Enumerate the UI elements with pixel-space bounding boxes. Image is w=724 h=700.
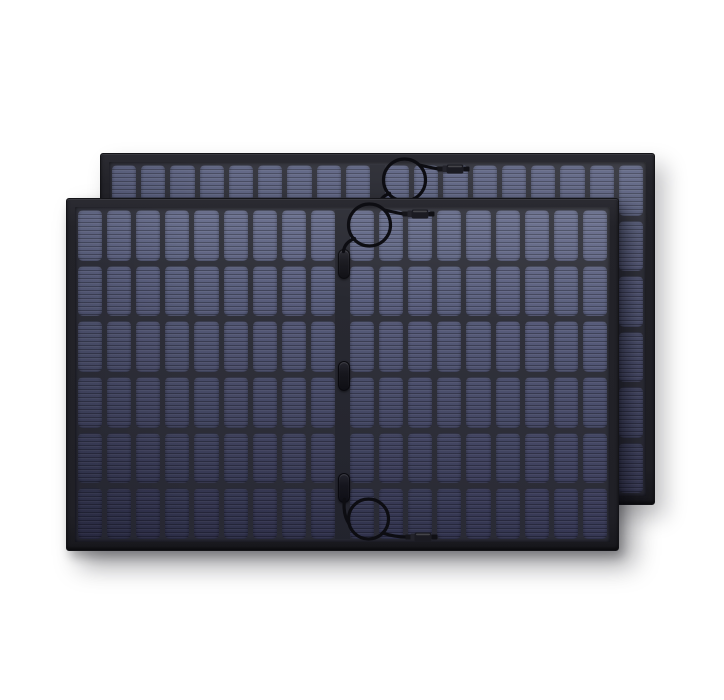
solar-cell: [282, 377, 306, 428]
solar-cell: [379, 321, 403, 372]
solar-cell: [408, 210, 432, 261]
solar-cell: [496, 321, 520, 372]
solar-cell: [554, 488, 578, 539]
solar-cell: [408, 488, 432, 539]
solar-cell: [224, 488, 248, 539]
solar-cell: [619, 165, 643, 216]
solar-cell: [194, 321, 218, 372]
solar-cell: [583, 321, 607, 372]
solar-cell: [78, 321, 102, 372]
solar-cell: [619, 387, 643, 438]
solar-cell: [136, 488, 160, 539]
solar-cell: [253, 266, 277, 317]
solar-cell: [350, 488, 374, 539]
solar-cell: [253, 433, 277, 484]
solar-cell: [311, 266, 335, 317]
solar-cell: [165, 266, 189, 317]
solar-cell: [194, 488, 218, 539]
solar-cell: [466, 488, 490, 539]
solar-cell: [554, 321, 578, 372]
solar-cell: [525, 266, 549, 317]
solar-cell: [194, 433, 218, 484]
solar-cell: [224, 377, 248, 428]
solar-cell: [437, 210, 461, 261]
solar-cell: [311, 321, 335, 372]
solar-cell: [619, 221, 643, 272]
solar-cell: [136, 321, 160, 372]
solar-cell: [525, 321, 549, 372]
solar-cell: [78, 433, 102, 484]
solar-cell: [282, 210, 306, 261]
solar-cell: [107, 321, 131, 372]
solar-cell: [437, 321, 461, 372]
solar-cell: [466, 210, 490, 261]
solar-cell: [165, 433, 189, 484]
solar-cell: [437, 377, 461, 428]
solar-cell: [224, 210, 248, 261]
junction-pill: [338, 249, 350, 279]
solar-cell: [78, 377, 102, 428]
solar-cell: [253, 210, 277, 261]
solar-cell: [107, 377, 131, 428]
solar-cell: [554, 377, 578, 428]
junction-pill: [338, 473, 350, 503]
solar-cell: [165, 377, 189, 428]
junction-pill: [338, 361, 350, 391]
solar-cell: [525, 433, 549, 484]
solar-cell: [78, 488, 102, 539]
solar-cell: [224, 433, 248, 484]
solar-cell: [466, 266, 490, 317]
solar-cell: [437, 433, 461, 484]
solar-cell: [496, 266, 520, 317]
cells-right-half: [350, 210, 607, 539]
solar-cell: [379, 433, 403, 484]
solar-cell: [194, 210, 218, 261]
solar-cell: [466, 321, 490, 372]
solar-cell: [253, 488, 277, 539]
solar-cell: [107, 210, 131, 261]
solar-cell: [496, 377, 520, 428]
solar-cell: [408, 321, 432, 372]
solar-cell: [583, 377, 607, 428]
solar-cell: [311, 210, 335, 261]
solar-cell: [379, 210, 403, 261]
solar-cell: [525, 377, 549, 428]
cells-left-half: [78, 210, 335, 539]
solar-cell: [136, 210, 160, 261]
solar-cell: [496, 433, 520, 484]
solar-cell: [165, 210, 189, 261]
solar-cell: [311, 488, 335, 539]
solar-cell: [107, 488, 131, 539]
solar-cell: [554, 433, 578, 484]
solar-cell: [496, 488, 520, 539]
solar-cell: [408, 377, 432, 428]
solar-cell: [408, 266, 432, 317]
solar-panel-front: [66, 198, 619, 551]
solar-cell: [350, 433, 374, 484]
solar-cell: [224, 266, 248, 317]
solar-cell: [350, 210, 374, 261]
solar-cell: [165, 321, 189, 372]
solar-cell: [466, 377, 490, 428]
solar-cell: [350, 266, 374, 317]
solar-cell: [379, 488, 403, 539]
solar-cell: [311, 433, 335, 484]
solar-cell: [107, 433, 131, 484]
solar-cell: [583, 488, 607, 539]
solar-cell: [408, 433, 432, 484]
solar-cell: [466, 433, 490, 484]
solar-cell: [496, 210, 520, 261]
solar-cell: [282, 321, 306, 372]
solar-cell: [194, 377, 218, 428]
solar-cell: [554, 210, 578, 261]
solar-cell: [554, 266, 578, 317]
solar-cell: [379, 266, 403, 317]
solar-cell: [525, 488, 549, 539]
solar-cell: [525, 210, 549, 261]
solar-cell: [107, 266, 131, 317]
solar-cell: [282, 266, 306, 317]
solar-cell: [78, 210, 102, 261]
solar-cell: [583, 210, 607, 261]
solar-cell: [253, 377, 277, 428]
solar-cell: [78, 266, 102, 317]
panel-cell-area: [75, 207, 610, 542]
solar-cell: [437, 266, 461, 317]
solar-cell: [583, 433, 607, 484]
solar-cell: [136, 433, 160, 484]
product-image: [0, 0, 724, 700]
solar-cell: [165, 488, 189, 539]
solar-cell: [282, 433, 306, 484]
solar-cell: [379, 377, 403, 428]
solar-cell: [619, 443, 643, 494]
solar-cell: [282, 488, 306, 539]
solar-cell: [619, 276, 643, 327]
solar-cell: [350, 321, 374, 372]
solar-cell: [136, 266, 160, 317]
solar-cell: [437, 488, 461, 539]
solar-cell: [619, 332, 643, 383]
solar-cell: [311, 377, 335, 428]
solar-cell: [583, 266, 607, 317]
solar-cell: [136, 377, 160, 428]
solar-cell: [350, 377, 374, 428]
solar-cell: [253, 321, 277, 372]
solar-cell: [194, 266, 218, 317]
solar-cell: [224, 321, 248, 372]
